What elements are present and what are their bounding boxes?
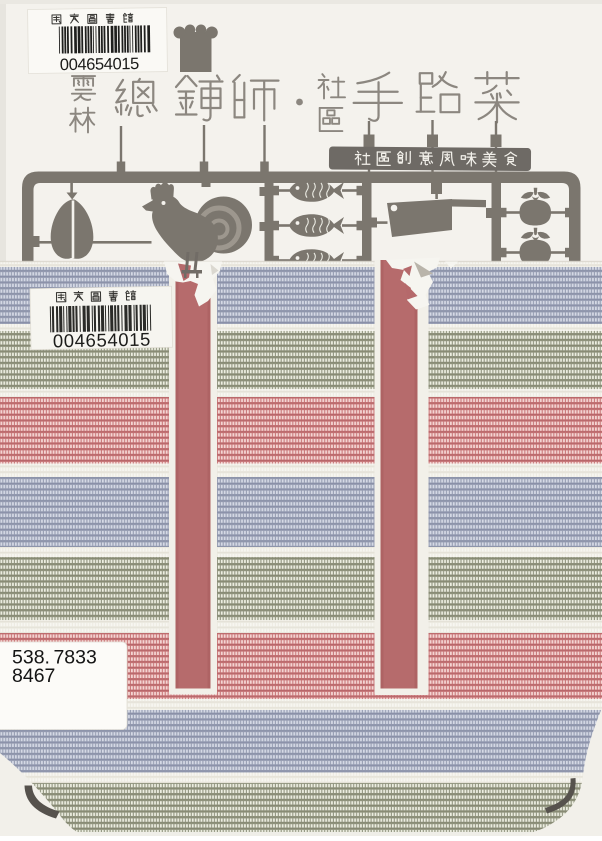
svg-text:004654015: 004654015 (60, 55, 139, 74)
svg-text:004654015: 004654015 (53, 329, 151, 352)
svg-text:8467: 8467 (12, 665, 55, 687)
